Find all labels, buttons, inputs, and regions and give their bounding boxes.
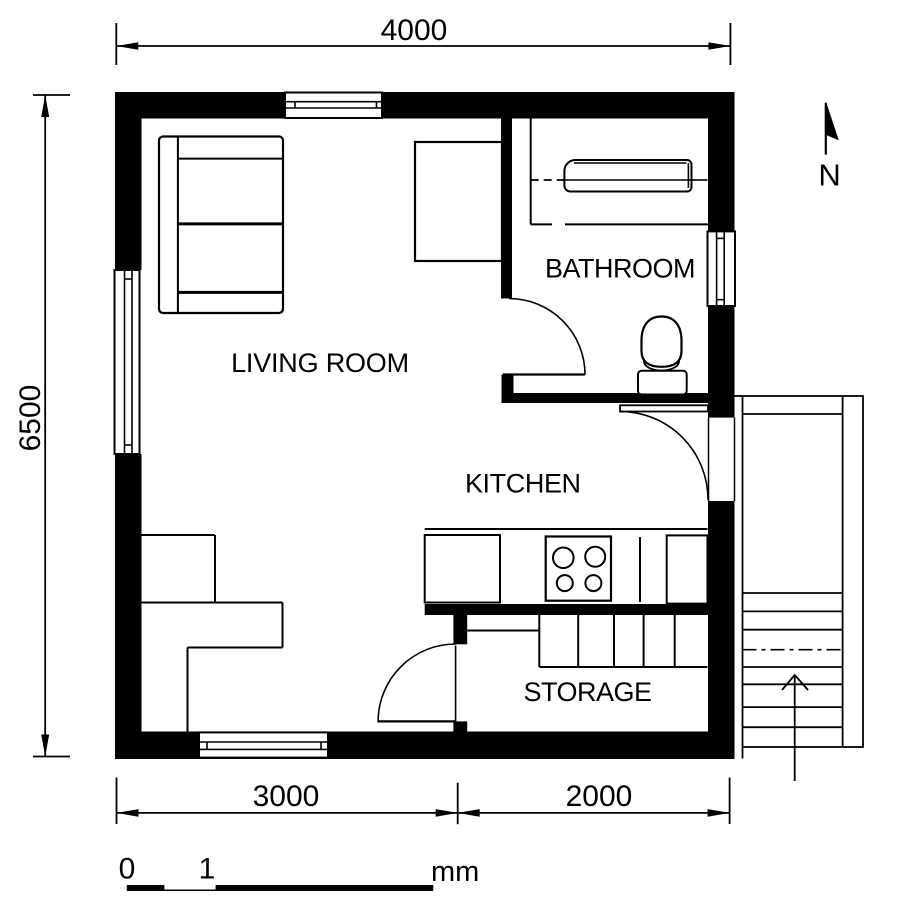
- svg-text:4000: 4000: [381, 14, 448, 47]
- svg-text:N: N: [818, 158, 840, 193]
- svg-text:3000: 3000: [253, 780, 320, 813]
- svg-text:KITCHEN: KITCHEN: [465, 469, 581, 499]
- svg-text:6500: 6500: [14, 385, 47, 452]
- svg-text:LIVING ROOM: LIVING ROOM: [231, 348, 409, 378]
- svg-text:2000: 2000: [566, 780, 633, 813]
- svg-text:BATHROOM: BATHROOM: [545, 254, 695, 284]
- svg-text:0: 0: [119, 853, 136, 886]
- svg-text:STORAGE: STORAGE: [523, 677, 651, 707]
- svg-text:mm: mm: [431, 856, 479, 888]
- svg-text:1: 1: [199, 853, 216, 886]
